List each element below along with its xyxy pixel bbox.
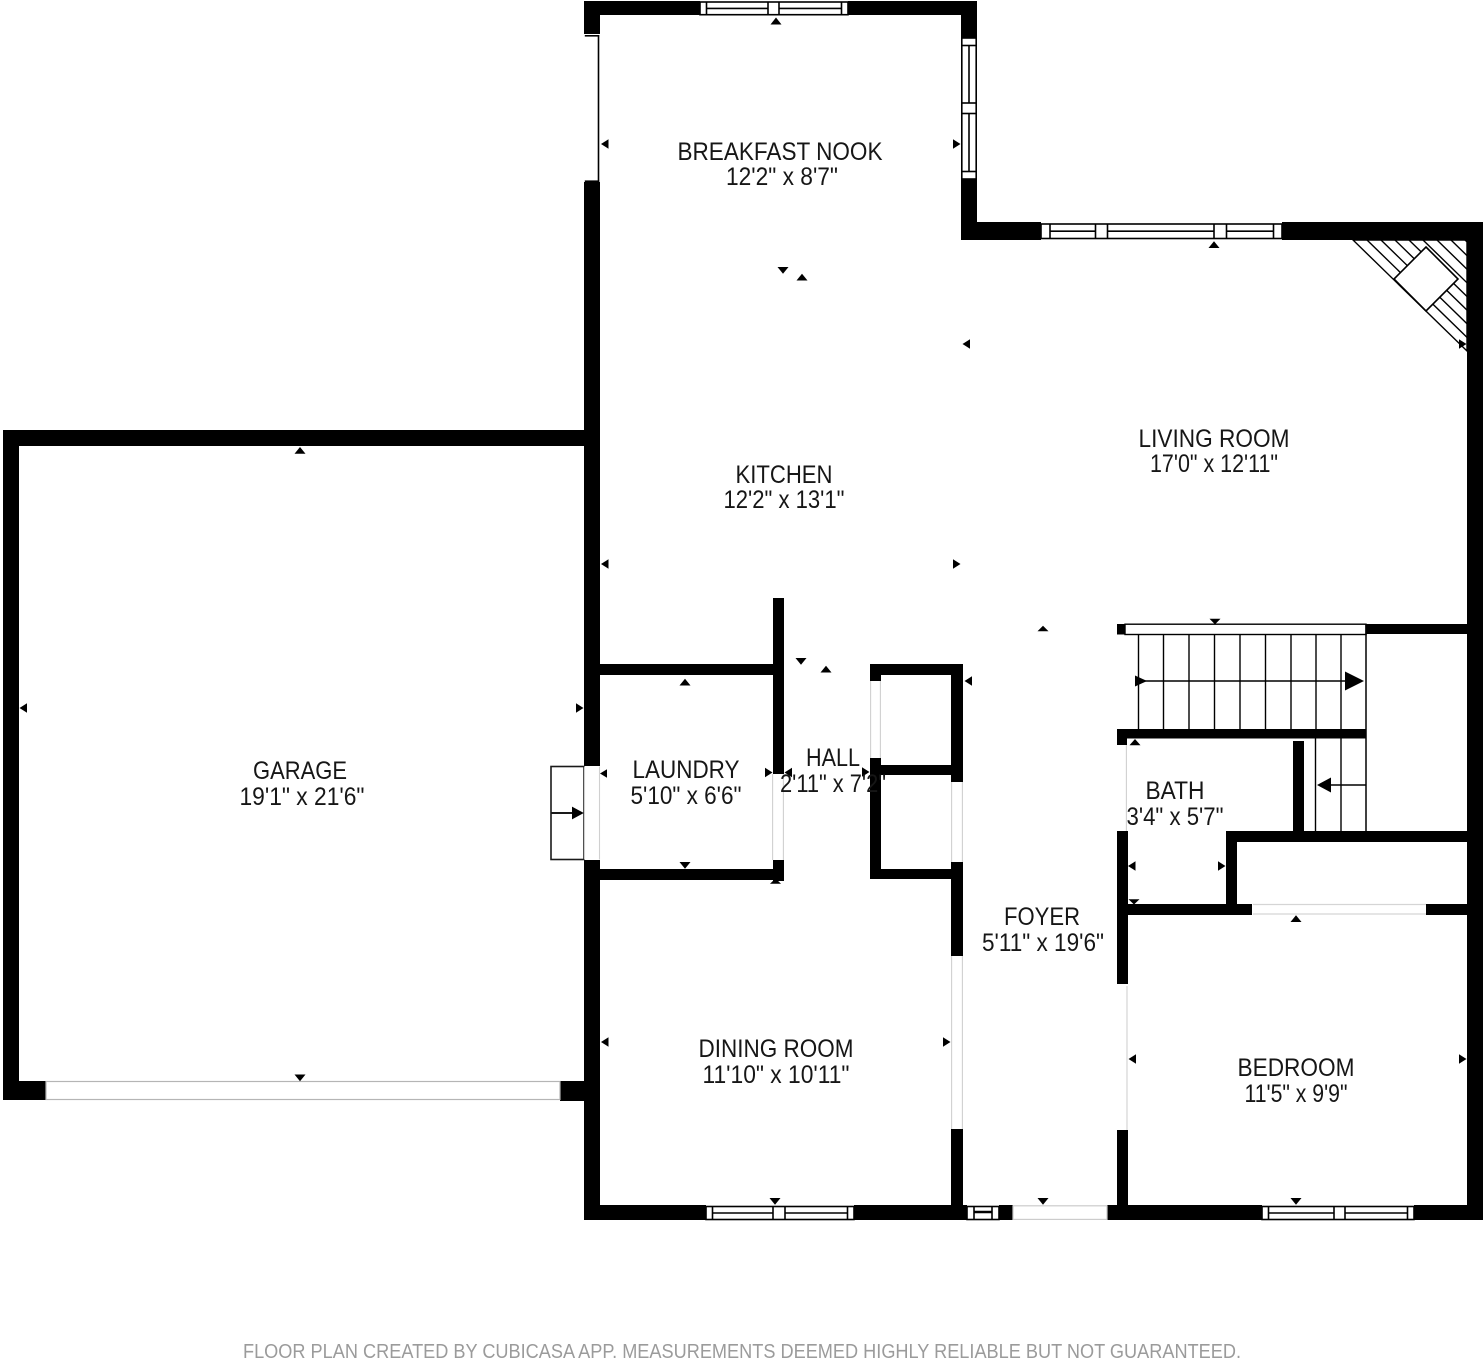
svg-text:HALL: HALL — [806, 744, 860, 772]
svg-text:LAUNDRY: LAUNDRY — [633, 756, 740, 784]
svg-text:17'0" x 12'11": 17'0" x 12'11" — [1150, 450, 1278, 478]
svg-text:2'11" x 7'2": 2'11" x 7'2" — [780, 770, 886, 798]
svg-text:BREAKFAST NOOK: BREAKFAST NOOK — [678, 138, 883, 166]
svg-text:KITCHEN: KITCHEN — [736, 461, 833, 489]
svg-text:12'2" x 8'7": 12'2" x 8'7" — [726, 163, 838, 191]
svg-text:DINING ROOM: DINING ROOM — [699, 1035, 854, 1063]
svg-text:LIVING ROOM: LIVING ROOM — [1139, 425, 1290, 453]
svg-text:FLOOR PLAN CREATED BY CUBICASA: FLOOR PLAN CREATED BY CUBICASA APP. MEAS… — [243, 1341, 1241, 1361]
svg-text:12'2" x 13'1": 12'2" x 13'1" — [724, 486, 845, 514]
svg-text:11'5" x 9'9": 11'5" x 9'9" — [1245, 1080, 1348, 1108]
svg-text:3'4" x 5'7": 3'4" x 5'7" — [1127, 803, 1224, 831]
svg-text:BEDROOM: BEDROOM — [1238, 1054, 1355, 1082]
svg-text:GARAGE: GARAGE — [253, 757, 347, 785]
svg-text:FOYER: FOYER — [1004, 903, 1080, 931]
svg-text:11'10" x 10'11": 11'10" x 10'11" — [703, 1061, 850, 1089]
svg-text:BATH: BATH — [1146, 777, 1205, 805]
svg-text:19'1" x 21'6": 19'1" x 21'6" — [240, 783, 365, 811]
svg-text:5'10" x 6'6": 5'10" x 6'6" — [631, 782, 742, 810]
svg-text:5'11" x 19'6": 5'11" x 19'6" — [982, 929, 1104, 957]
